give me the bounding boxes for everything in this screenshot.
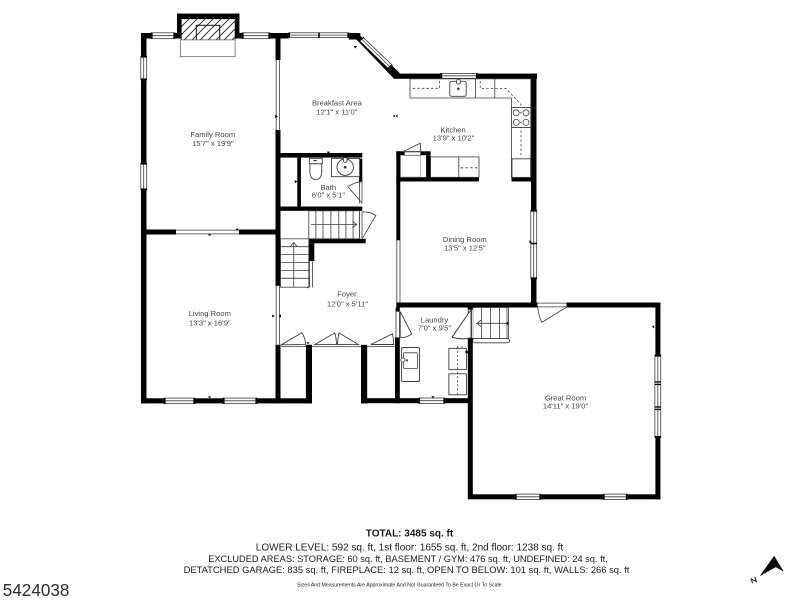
svg-text:13'3" x 16'9": 13'3" x 16'9" bbox=[189, 318, 231, 327]
svg-text:Sizes And Measurements Are App: Sizes And Measurements Are Approximate A… bbox=[297, 583, 503, 589]
svg-text:12'1" x 11'0": 12'1" x 11'0" bbox=[316, 108, 357, 117]
svg-text:EXCLUDED AREAS: STORAGE: 60 sq: EXCLUDED AREAS: STORAGE: 60 sq. ft, BASE… bbox=[208, 554, 608, 564]
svg-text:5424038: 5424038 bbox=[3, 581, 70, 600]
svg-text:14'11" x 19'0": 14'11" x 19'0" bbox=[543, 402, 589, 411]
svg-text:LOWER LEVEL: 592 sq. ft, 1st f: LOWER LEVEL: 592 sq. ft, 1st floor: 1655… bbox=[256, 542, 564, 553]
svg-text:Breakfast Area: Breakfast Area bbox=[312, 98, 363, 107]
svg-text:7'0" x 9'5": 7'0" x 9'5" bbox=[418, 323, 452, 332]
svg-text:Living Room: Living Room bbox=[189, 309, 231, 318]
svg-text:15'7" x 19'9": 15'7" x 19'9" bbox=[192, 139, 234, 148]
svg-text:Family Room: Family Room bbox=[190, 130, 235, 139]
svg-text:Foyer: Foyer bbox=[337, 290, 357, 299]
svg-text:TOTAL: 3485 sq. ft: TOTAL: 3485 sq. ft bbox=[366, 529, 454, 540]
svg-text:DETATCHED GARAGE: 835 sq. ft,: DETATCHED GARAGE: 835 sq. ft, FIREPLACE:… bbox=[184, 564, 630, 575]
svg-text:6'0" x 5'1": 6'0" x 5'1" bbox=[312, 191, 346, 200]
svg-text:13'5" x 12'5": 13'5" x 12'5" bbox=[444, 243, 486, 252]
svg-text:12'0" x 5'11": 12'0" x 5'11" bbox=[327, 299, 368, 308]
svg-text:13'9" x 10'2": 13'9" x 10'2" bbox=[433, 134, 475, 143]
